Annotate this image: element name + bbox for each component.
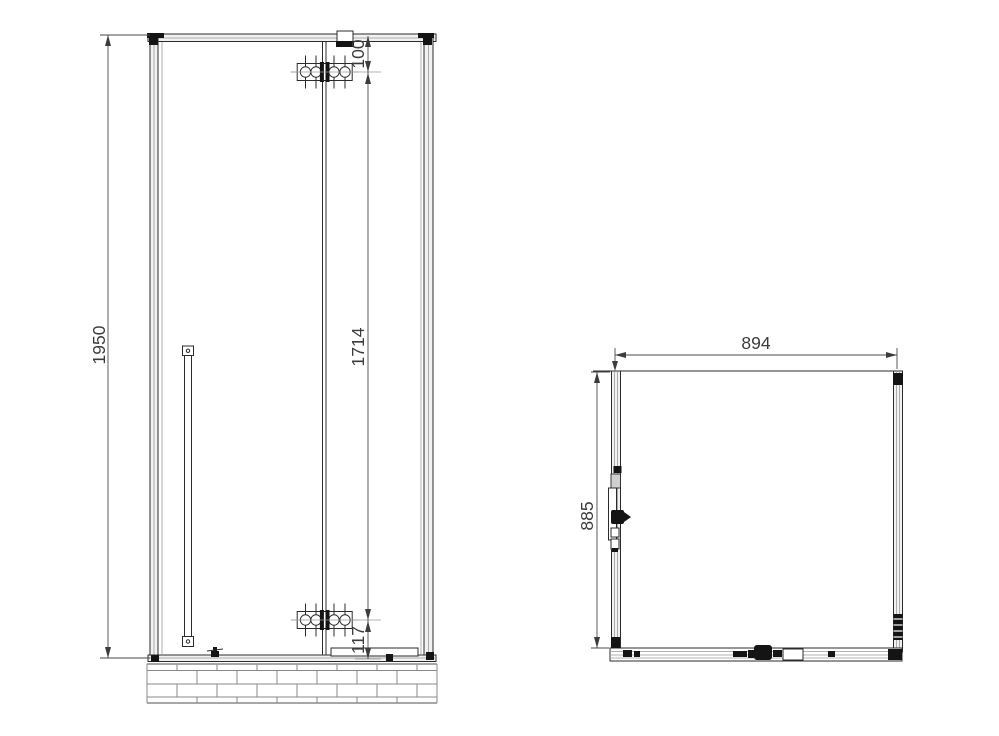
bottom-clamp-block [386,654,393,661]
door-handle [183,346,194,647]
plan-view: 894 885 [577,333,903,661]
bottom-clamp-bar [331,648,418,656]
enclosure-frame-plan [593,371,903,661]
dim-label-1950: 1950 [89,325,109,364]
dim-label-100: 100 [348,39,368,68]
dim-label-894: 894 [741,333,770,353]
dim-label-1714: 1714 [348,327,368,366]
panel-division-mullion [323,42,327,656]
corner-bracket-plan-top-right [893,373,903,385]
dim-label-885: 885 [577,501,597,530]
wall-profile-plan-right [894,371,903,652]
corner-hardware-plan-bottom-right [888,614,903,660]
drawing-sheet: 1950 100 1714 117 [0,0,999,736]
dim-overall-width: 894 [612,333,897,371]
drawing-canvas: 1950 100 1714 117 [0,0,999,736]
corner-bracket-bottom-right [426,652,434,660]
shower-tray-bricks [147,664,437,703]
dim-overall-height: 1950 [89,35,150,658]
front-elevation-view: 1950 100 1714 117 [89,31,437,703]
dim-label-117: 117 [348,626,368,654]
corner-bracket-bottom-left [151,655,159,662]
dim-overall-depth: 885 [577,372,610,648]
dim-hinge-chain: 100 1714 117 [291,36,381,659]
